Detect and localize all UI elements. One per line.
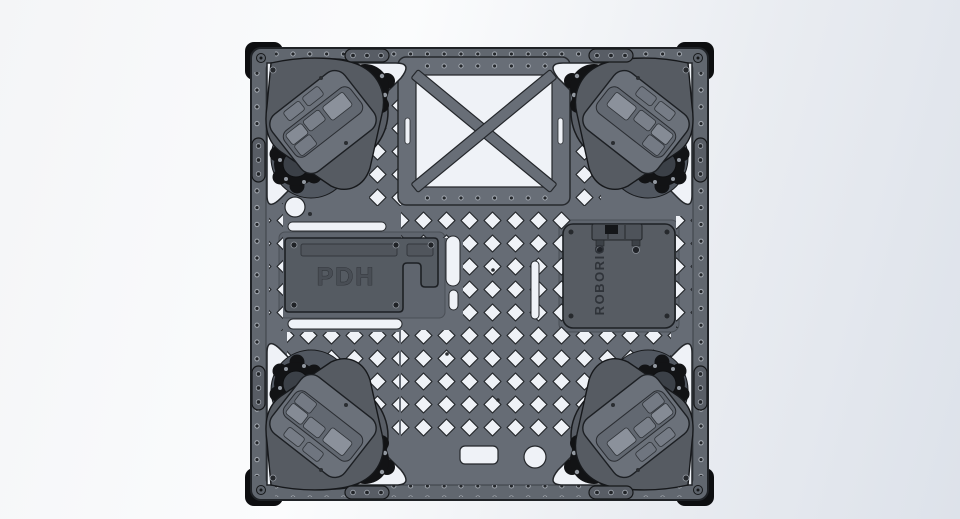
roborio-label: ROBORIO xyxy=(592,243,607,316)
x-brace-panel xyxy=(398,57,570,205)
chassis-plate: PDH ROBORIO xyxy=(245,42,714,506)
roborio-controller: ROBORIO xyxy=(563,224,675,328)
chassis-render: PDH ROBORIO xyxy=(0,0,960,519)
cad-viewport: PDH ROBORIO xyxy=(0,0,960,519)
pdh-label: PDH xyxy=(317,263,376,291)
